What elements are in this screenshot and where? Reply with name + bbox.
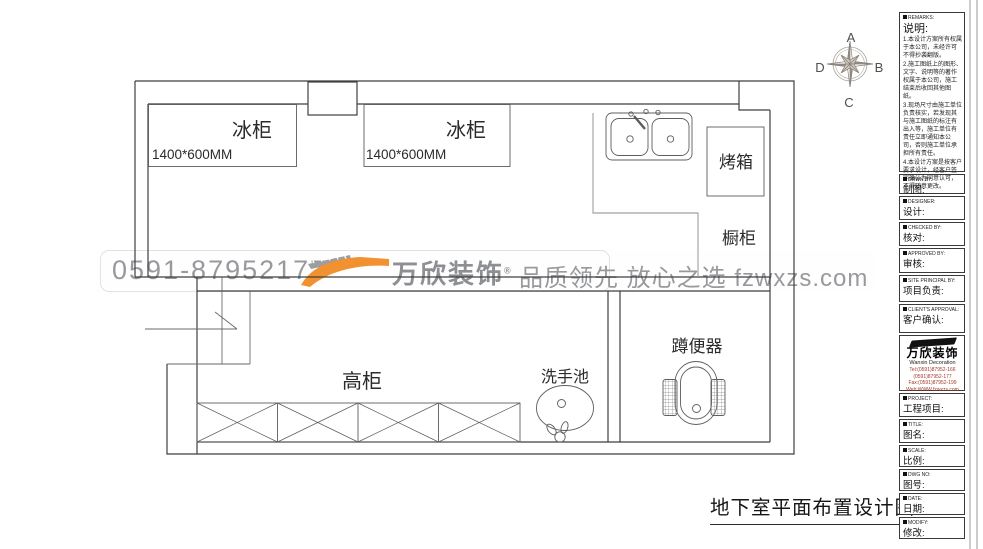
- tall-cabinet-hatch: [197, 403, 520, 442]
- drawing-title: 地下室平面布置设计图: [710, 491, 900, 525]
- field-en-label: PROJECT:: [903, 396, 962, 403]
- field-en-label: CHECKED BY:: [903, 225, 962, 232]
- compass-label-s: C: [844, 95, 853, 110]
- field-en-label: DATE:: [903, 496, 962, 503]
- field-approved-by: APPROVED BY: 审核:: [899, 248, 965, 273]
- label-tall-cabinet: 高柜: [342, 370, 382, 393]
- company-logo-block: 万欣装饰 Wanxin Decoration Tel:(0591)87952-1…: [899, 335, 965, 391]
- field-zh-label: 修改:: [903, 527, 962, 540]
- remarks-zh-label: 说明:: [903, 22, 962, 36]
- compass-label-n: A: [847, 30, 856, 45]
- field-zh-label: 客户确认:: [903, 314, 962, 327]
- counter-edge: [593, 113, 698, 277]
- field-en-label: DESIGNER:: [903, 199, 962, 206]
- field-checked-by: CHECKED BY: 核对:: [899, 222, 965, 246]
- remarks-block: REMARKS: 说明: 1.本设计方案所有权属于本公司，未经许可不得抄袭翻版。…: [899, 12, 965, 172]
- drawing-sheet: { "plan": { "labels": { "fridge1": "冰柜",…: [0, 0, 983, 549]
- field-zh-label: 设计:: [903, 206, 962, 219]
- field-en-label: SCALE:: [903, 448, 962, 455]
- double-sink: [606, 109, 692, 160]
- squat-toilet-fixture: [663, 362, 725, 425]
- compass-label-e: B: [875, 60, 884, 75]
- field-en-label: CLIENT'S APPROVAL:: [903, 307, 962, 314]
- sheet-frame: [970, 0, 977, 549]
- field-title: TITLE: 图名:: [899, 419, 965, 443]
- logo-web: Web:WWW.fzwxzs.com: [903, 387, 962, 394]
- logo-brand: 万欣装饰: [903, 347, 962, 360]
- label-freezer-1: 冰柜: [232, 119, 272, 142]
- field-zh-label: 日期:: [903, 503, 962, 516]
- field-client-approval: CLIENT'S APPROVAL: 客户确认:: [899, 304, 965, 333]
- field-project: PROJECT: 工程项目:: [899, 393, 965, 417]
- remarks-en-label: REMARKS:: [903, 15, 962, 22]
- field-modify: MODIFY: 修改:: [899, 517, 965, 539]
- field-en-label: SITE PRINCIPAL BY:: [903, 278, 962, 285]
- logo-fax: Fax:(0591)87952-199: [903, 380, 962, 387]
- logo-brand-en: Wanxin Decoration: [903, 360, 962, 367]
- field-zh-label: 工程项目:: [903, 403, 962, 416]
- field-zh-label: 项目负责:: [903, 285, 962, 298]
- label-oven: 烤箱: [719, 153, 753, 172]
- field-date: DATE: 日期:: [899, 493, 965, 515]
- label-squat-toilet: 蹲便器: [672, 337, 723, 356]
- wash-basin-fixture: [537, 386, 594, 443]
- field-zh-label: 核对:: [903, 232, 962, 245]
- duct-column: [308, 82, 357, 115]
- floor-plan-svg: 冰柜 1400*600MM 冰柜 1400*600MM 烤箱 橱柜 高柜 洗手池…: [0, 0, 983, 549]
- field-dwg-no: DWG NO: 图号:: [899, 469, 965, 491]
- field-en-label: DWG NO:: [903, 472, 962, 479]
- label-cupboard: 橱柜: [722, 229, 756, 248]
- field-zh-label: 图名:: [903, 429, 962, 442]
- label-freezer-2-size: 1400*600MM: [366, 147, 446, 162]
- label-wash-basin: 洗手池: [541, 368, 589, 386]
- field-zh-label: 审核:: [903, 258, 962, 271]
- compass-label-w: D: [815, 60, 824, 75]
- remarks-item: 1.本设计方案所有权属于本公司，未经许可不得抄袭翻版。: [903, 36, 962, 60]
- field-en-label: APPROVED BY:: [903, 251, 962, 258]
- remarks-item: 3.现场尺寸由施工单位负责核实，若发现其与施工图纸的标注有出入等，施工单位有责任…: [903, 102, 962, 158]
- compass-rose: A B C D: [815, 30, 883, 110]
- field-scale: SCALE: 比例:: [899, 445, 965, 467]
- field-en-label: MODIFY:: [903, 520, 962, 527]
- field-site-principal: SITE PRINCIPAL BY: 项目负责:: [899, 275, 965, 302]
- label-freezer-2: 冰柜: [446, 119, 486, 142]
- remarks-item: 2.施工图纸上的图形、文字、说明等的著作权属于本公司，施工结束后收回其他图纸。: [903, 61, 962, 101]
- title-block-panel: REMARKS: 说明: 1.本设计方案所有权属于本公司，未经许可不得抄袭翻版。…: [899, 12, 965, 541]
- label-freezer-1-size: 1400*600MM: [152, 147, 232, 162]
- field-designer: DESIGNER: 设计:: [899, 196, 965, 220]
- field-zh-label: 比例:: [903, 455, 962, 468]
- field-en-label: TITLE:: [903, 422, 962, 429]
- logo-tel1: Tel:(0591)87952-166: [903, 367, 962, 374]
- field-zh-label: 图号:: [903, 479, 962, 492]
